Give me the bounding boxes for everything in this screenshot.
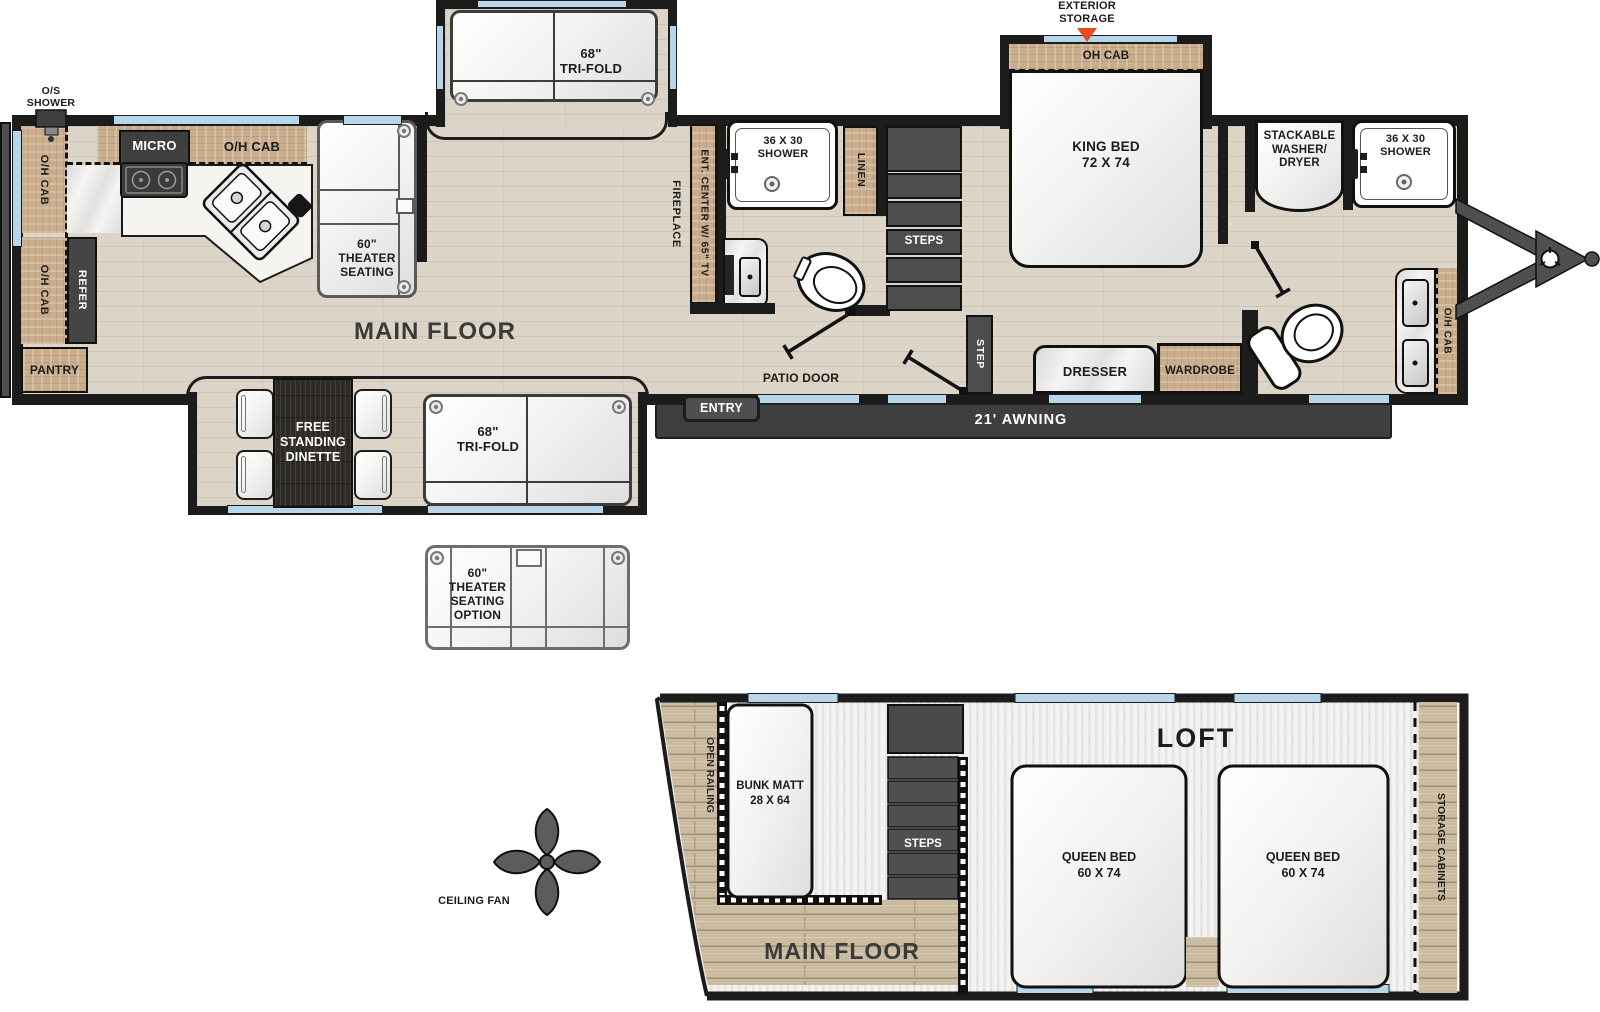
label-queen1-1: QUEEN BED xyxy=(1062,850,1136,864)
outside-shower-fixture xyxy=(36,110,66,142)
shower-head-front xyxy=(1348,149,1367,179)
label-loft-title: LOFT xyxy=(1157,723,1235,753)
loft-steps xyxy=(888,705,963,899)
label-loft-steps: STEPS xyxy=(904,838,942,850)
label-bunk-2: 28 X 64 xyxy=(750,795,790,807)
ceiling-fan-icon xyxy=(494,809,600,915)
label-queen2-1: QUEEN BED xyxy=(1266,850,1340,864)
trailer-hitch xyxy=(1456,199,1599,319)
label-loft-main-floor: MAIN FLOOR xyxy=(764,938,920,964)
toilet-mid xyxy=(787,242,873,321)
door-swing-front-bath xyxy=(1251,241,1290,297)
label-open-railing: OPEN RAILING xyxy=(704,737,716,813)
sofa-screws xyxy=(398,93,654,564)
label-queen2-2: 60 X 74 xyxy=(1281,866,1324,880)
label-storage-cabinets: STORAGE CABINETS xyxy=(1435,793,1447,901)
label-bunk-1: BUNK MATT xyxy=(736,780,804,792)
bed-divider-wood xyxy=(1186,937,1219,987)
door-swing-bedroom xyxy=(904,350,967,395)
shower-head-mid xyxy=(719,149,738,179)
loft-floorplan: BUNK MATT 28 X 64 OPEN RAILING STEPS QUE… xyxy=(640,675,1470,1012)
door-swing-bath xyxy=(784,308,856,359)
label-queen1-2: 60 X 74 xyxy=(1077,866,1120,880)
stove-cooktop xyxy=(121,163,187,197)
toilet-front xyxy=(1245,291,1355,393)
rv-floorplan-diagram: 68" TRI-FOLD OH CAB KING BED 72 X 74 EXT… xyxy=(0,0,1600,1012)
